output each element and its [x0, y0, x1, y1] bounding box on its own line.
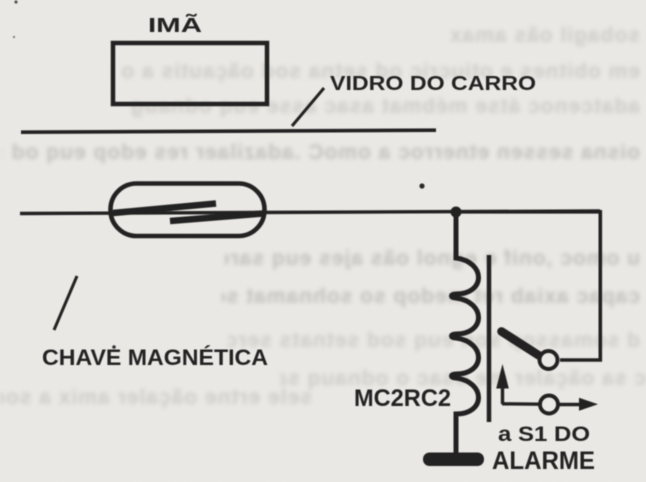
svg-text:MC2RC2: MC2RC2 — [354, 385, 451, 412]
svg-text:ALARME: ALARME — [492, 447, 595, 475]
svg-text:CHAVE MAGNÉTICA: CHAVE MAGNÉTICA — [42, 345, 268, 370]
svg-text:IMÃ: IMÃ — [148, 14, 202, 37]
svg-text:a S1 DO: a S1 DO — [498, 423, 590, 446]
svg-text:VIDRO DO CARRO: VIDRO DO CARRO — [330, 72, 536, 95]
